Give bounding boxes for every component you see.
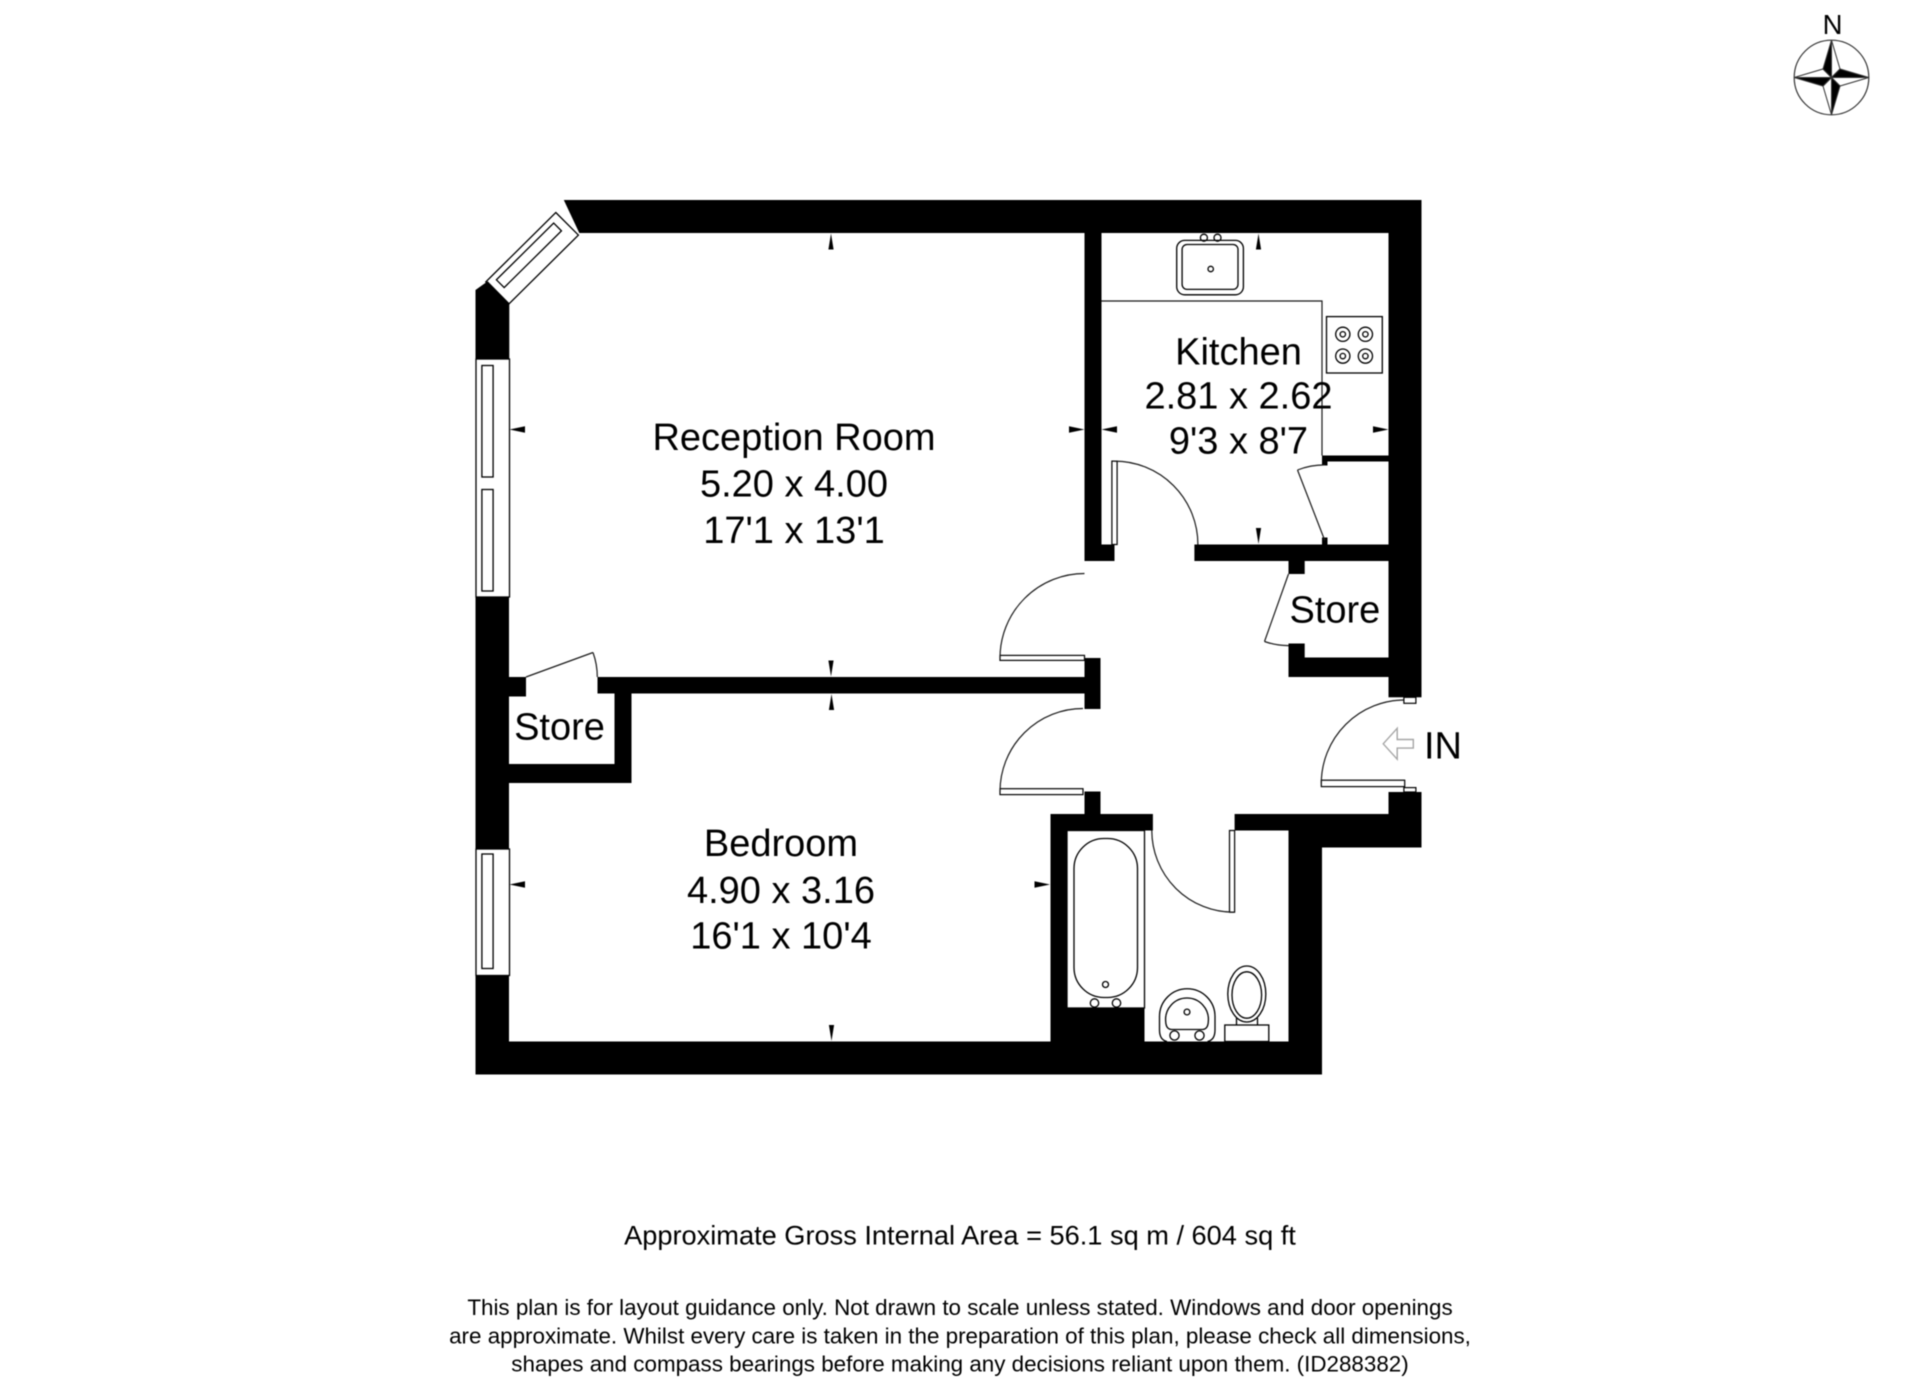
svg-text:17'1 x 13'1: 17'1 x 13'1 [703, 510, 884, 552]
svg-text:16'1 x 10'4: 16'1 x 10'4 [690, 916, 871, 958]
svg-text:Store: Store [514, 706, 605, 748]
svg-text:2.81 x 2.62: 2.81 x 2.62 [1144, 375, 1332, 417]
svg-text:IN: IN [1424, 725, 1462, 767]
svg-text:This plan is for layout guidan: This plan is for layout guidance only. N… [467, 1295, 1452, 1320]
svg-text:Approximate Gross Internal Are: Approximate Gross Internal Area = 56.1 s… [624, 1220, 1296, 1251]
svg-text:Bedroom: Bedroom [704, 823, 858, 865]
svg-text:Store: Store [1289, 589, 1380, 631]
svg-text:Reception Room: Reception Room [652, 417, 935, 459]
svg-text:N: N [1823, 9, 1843, 40]
svg-text:5.20 x 4.00: 5.20 x 4.00 [700, 464, 888, 506]
svg-text:9'3 x 8'7: 9'3 x 8'7 [1169, 420, 1308, 462]
svg-text:Kitchen: Kitchen [1175, 332, 1302, 374]
svg-text:4.90 x 3.16: 4.90 x 3.16 [687, 870, 875, 912]
svg-text:are approximate. Whilst every: are approximate. Whilst every care is ta… [449, 1323, 1471, 1348]
svg-text:shapes and compass bearings be: shapes and compass bearings before makin… [511, 1352, 1408, 1377]
